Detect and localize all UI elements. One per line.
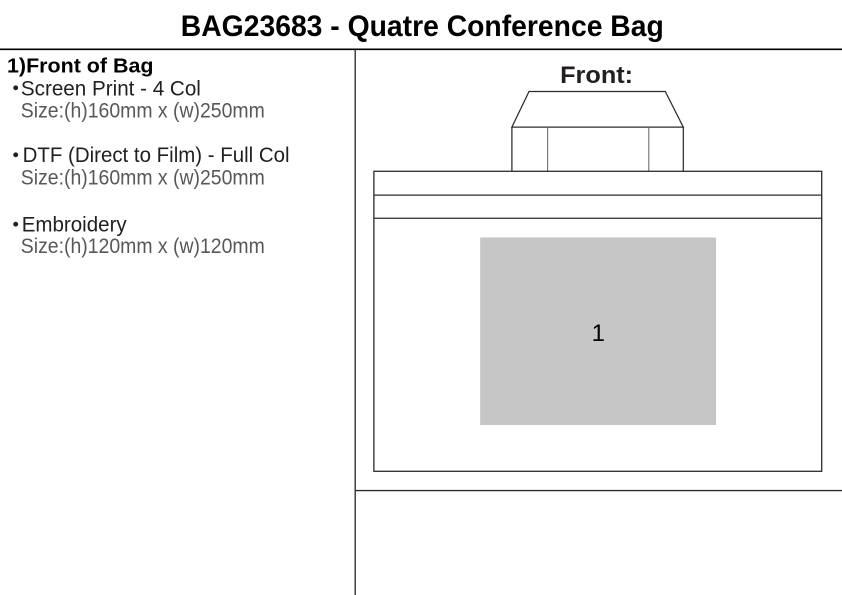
svg-text:Embroidery: Embroidery <box>22 213 127 236</box>
svg-text:Size:(h)160mm x (w)250mm: Size:(h)160mm x (w)250mm <box>21 99 265 122</box>
svg-text:1: 1 <box>592 320 605 347</box>
svg-text:BAG23683 - Quatre Conference B: BAG23683 - Quatre Conference Bag <box>181 10 664 43</box>
svg-text:Size:(h)160mm x (w)250mm: Size:(h)160mm x (w)250mm <box>21 167 265 190</box>
svg-text:1)Front of Bag: 1)Front of Bag <box>7 55 154 78</box>
svg-text:Screen Print - 4 Col: Screen Print - 4 Col <box>21 77 201 100</box>
svg-text:DTF (Direct to Film) - Full Co: DTF (Direct to Film) - Full Col <box>23 144 290 167</box>
svg-text:Size:(h)120mm x (w)120mm: Size:(h)120mm x (w)120mm <box>21 235 265 258</box>
svg-text:Front:: Front: <box>560 62 633 89</box>
